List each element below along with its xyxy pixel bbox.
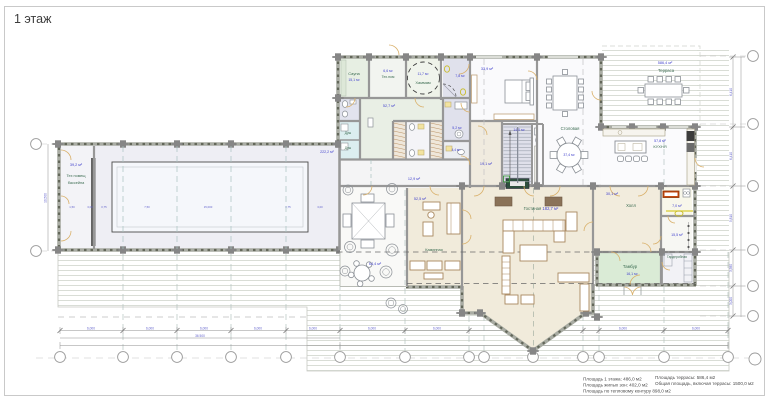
svg-text:Площадь террасы: 586,4 м2: Площадь террасы: 586,4 м2: [655, 375, 716, 380]
svg-text:Тамбур: Тамбур: [623, 264, 638, 269]
svg-text:Каминная: Каминная: [425, 248, 442, 252]
svg-text:6,000: 6,000: [309, 327, 317, 331]
svg-text:37,4 м²: 37,4 м²: [563, 153, 575, 157]
svg-text:1 этаж: 1 этаж: [14, 12, 52, 26]
svg-text:10,500: 10,500: [44, 193, 48, 203]
svg-text:6,000: 6,000: [692, 327, 700, 331]
svg-text:Хаммам: Хаммам: [415, 80, 431, 85]
svg-text:3,00: 3,00: [87, 205, 93, 209]
svg-text:3,000: 3,000: [729, 297, 733, 305]
svg-text:Тех.пом: Тех.пом: [382, 75, 395, 79]
svg-text:Площадь жилых зон: 402,0 м2: Площадь жилых зон: 402,0 м2: [583, 383, 648, 388]
svg-text:6,000: 6,000: [368, 327, 376, 331]
svg-text:6,410: 6,410: [729, 88, 733, 96]
svg-text:15,5 м²: 15,5 м²: [671, 233, 683, 237]
svg-text:1,50: 1,50: [69, 205, 75, 209]
svg-text:7,8 м²: 7,8 м²: [455, 74, 465, 78]
svg-text:222,2 м²: 222,2 м²: [320, 150, 334, 154]
svg-text:Душ: Душ: [345, 131, 352, 135]
svg-text:12,9 м²: 12,9 м²: [408, 177, 421, 181]
svg-text:7,50: 7,50: [144, 205, 150, 209]
svg-text:5,2 м²: 5,2 м²: [452, 126, 462, 130]
svg-text:16,1 м²: 16,1 м²: [626, 272, 638, 276]
svg-text:7,0 м²: 7,0 м²: [672, 204, 682, 208]
svg-text:Площадь по тепловому контуру 8: Площадь по тепловому контуру 898,0 м2: [583, 389, 671, 394]
svg-text:33,9 м²: 33,9 м²: [481, 67, 494, 71]
svg-text:6,000: 6,000: [619, 327, 627, 331]
svg-text:15,000: 15,000: [204, 205, 213, 209]
svg-text:Душ: Душ: [345, 146, 352, 150]
svg-text:3,580: 3,580: [729, 264, 733, 272]
svg-text:6,000: 6,000: [433, 327, 441, 331]
svg-text:Гостиная 182,7 м²: Гостиная 182,7 м²: [524, 206, 559, 211]
svg-text:36 500: 36 500: [195, 334, 205, 338]
svg-text:Общая площадь, включая террасы: Общая площадь, включая террасы: 1500,0 м…: [655, 381, 754, 386]
svg-text:6,000: 6,000: [146, 327, 154, 331]
svg-text:57,8 м²: 57,8 м²: [654, 139, 666, 143]
svg-text:6,6 м²: 6,6 м²: [383, 69, 393, 73]
svg-text:52,5 м²: 52,5 м²: [414, 197, 427, 201]
svg-text:39,2 м²: 39,2 м²: [70, 163, 83, 167]
svg-text:Площадь 1 этажа: 486,0 м2: Площадь 1 этажа: 486,0 м2: [583, 377, 642, 382]
svg-text:586,4 м²: 586,4 м²: [658, 61, 673, 65]
svg-text:30,1 м²: 30,1 м²: [606, 192, 619, 196]
svg-text:11,7 м²: 11,7 м²: [417, 72, 429, 76]
svg-text:Холл: Холл: [626, 203, 636, 208]
svg-text:6,410: 6,410: [729, 152, 733, 160]
svg-text:6,000: 6,000: [200, 327, 208, 331]
svg-text:Терраса: Терраса: [658, 68, 675, 73]
svg-text:64,4 м²: 64,4 м²: [369, 262, 382, 266]
svg-text:52,7 м²: 52,7 м²: [383, 104, 396, 108]
svg-text:Столовая: Столовая: [561, 126, 580, 131]
svg-text:6,000: 6,000: [254, 327, 262, 331]
svg-text:19,1 м²: 19,1 м²: [480, 162, 493, 166]
svg-text:4,4 м²: 4,4 м²: [452, 148, 462, 152]
svg-text:3,00: 3,00: [317, 205, 323, 209]
svg-text:бассейна: бассейна: [68, 181, 85, 185]
svg-text:Тех помещ: Тех помещ: [66, 174, 86, 178]
svg-text:КУХНЯ: КУХНЯ: [653, 144, 666, 149]
svg-text:Гардеробная: Гардеробная: [667, 255, 687, 259]
svg-text:5,810: 5,810: [729, 214, 733, 222]
svg-text:15,1 м²: 15,1 м²: [348, 78, 360, 82]
svg-text:0,75: 0,75: [101, 205, 107, 209]
svg-text:14,0 м²: 14,0 м²: [513, 128, 525, 132]
svg-text:Сауна: Сауна: [348, 71, 360, 76]
svg-text:6,000: 6,000: [87, 327, 95, 331]
